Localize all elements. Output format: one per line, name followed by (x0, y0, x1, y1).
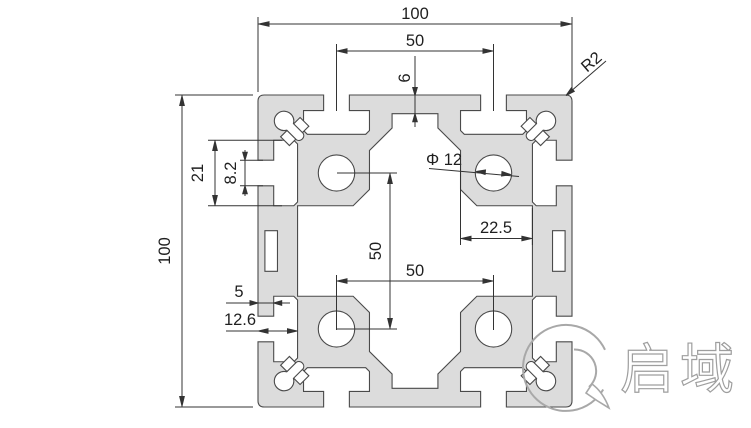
dim-lip-depth-text: 5 (234, 283, 243, 301)
side-void-left (265, 231, 278, 272)
dim-hole-spacing-horizontal-text: 50 (406, 262, 424, 280)
technical-drawing-canvas: 100 50 6 R2 (0, 0, 751, 428)
dim-arrow (180, 96, 185, 106)
dim-arrow (338, 49, 348, 54)
logo-brand-text: 启域 (620, 340, 740, 400)
dim-arrow (259, 329, 269, 334)
dim-arrow (483, 49, 493, 54)
logo-inner-swirl (574, 349, 596, 387)
dim-boss-to-surface-text: 22.5 (480, 219, 512, 237)
dim-slot-spacing-top-text: 50 (406, 32, 424, 50)
dim-hole-diameter-text: Φ 12 (426, 151, 462, 169)
drawing-svg: 100 50 6 R2 (0, 0, 751, 428)
dim-arrow (243, 152, 248, 160)
dim-hole-spacing-vertical-text: 50 (367, 242, 385, 260)
dim-corner-radius-text: R2 (578, 49, 606, 76)
dim-arrow (180, 397, 185, 407)
dim-wall-thickness-text: 6 (396, 73, 414, 82)
dim-slot-cavity-width-text: 21 (189, 164, 207, 182)
dim-arrow (213, 196, 218, 206)
profile-cross-section (258, 95, 572, 407)
dim-arrow (561, 22, 571, 27)
dim-slot-opening: 8.2 (222, 150, 263, 196)
dim-arrow (413, 88, 418, 96)
dim-arrow (243, 186, 248, 194)
dim-arrow (213, 141, 218, 151)
dim-overall-height-text: 100 (156, 237, 174, 265)
dim-arrow (250, 301, 258, 306)
dim-overall-width-text: 100 (401, 5, 429, 23)
dim-overall-height: 100 (156, 95, 253, 407)
dim-slot-depth-text: 12.6 (224, 311, 256, 329)
side-void-right (553, 231, 566, 272)
dim-arrow (288, 329, 298, 334)
dim-arrow (274, 301, 282, 306)
dim-arrow (259, 22, 269, 27)
dim-slot-opening-text: 8.2 (222, 162, 240, 185)
